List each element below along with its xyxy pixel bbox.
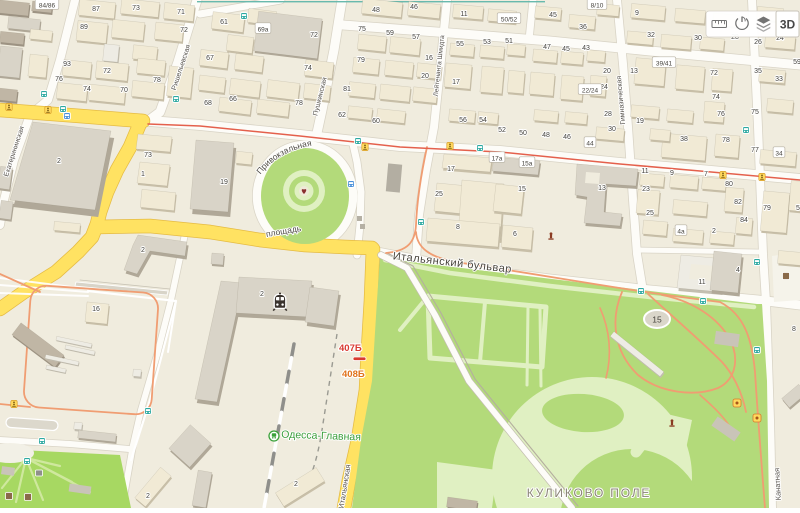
svg-text:11: 11 [641, 168, 648, 175]
svg-text:1: 1 [141, 171, 145, 178]
svg-text:84: 84 [740, 217, 748, 224]
svg-text:78: 78 [295, 100, 303, 107]
svg-text:53: 53 [483, 39, 491, 46]
svg-text:89: 89 [80, 24, 88, 31]
svg-text:15а: 15а [522, 160, 533, 167]
svg-text:30: 30 [608, 126, 616, 133]
svg-text:46: 46 [563, 134, 571, 141]
svg-text:87: 87 [92, 6, 100, 13]
svg-text:2: 2 [712, 228, 716, 235]
svg-text:75: 75 [751, 109, 759, 116]
svg-text:61: 61 [220, 19, 228, 26]
svg-text:56: 56 [459, 117, 467, 124]
svg-text:48: 48 [542, 132, 550, 139]
svg-text:3D: 3D [780, 18, 796, 32]
svg-text:71: 71 [177, 9, 185, 16]
svg-text:73: 73 [144, 152, 152, 159]
svg-text:79: 79 [357, 57, 365, 64]
svg-text:17: 17 [447, 166, 455, 173]
svg-text:2: 2 [260, 291, 264, 298]
svg-text:32: 32 [647, 32, 655, 39]
svg-text:68: 68 [204, 100, 212, 107]
svg-text:Канатная: Канатная [772, 468, 783, 501]
svg-text:4: 4 [736, 267, 740, 274]
svg-text:60: 60 [372, 118, 380, 125]
svg-text:28: 28 [604, 111, 612, 118]
svg-text:26: 26 [754, 39, 762, 46]
svg-text:15: 15 [518, 186, 526, 193]
svg-text:79: 79 [763, 205, 771, 212]
svg-text:2: 2 [57, 158, 61, 165]
svg-text:72: 72 [103, 68, 111, 75]
svg-text:43: 43 [582, 45, 590, 52]
svg-text:52: 52 [498, 127, 506, 134]
svg-text:5: 5 [796, 205, 800, 212]
svg-text:33: 33 [775, 76, 783, 83]
svg-text:57: 57 [412, 34, 420, 41]
svg-text:16: 16 [92, 306, 100, 313]
svg-text:72: 72 [710, 70, 718, 77]
svg-text:11: 11 [698, 279, 705, 286]
svg-text:9: 9 [635, 10, 639, 17]
svg-text:50: 50 [519, 130, 527, 137]
svg-text:59: 59 [386, 30, 394, 37]
svg-text:15: 15 [652, 315, 662, 325]
svg-text:17: 17 [452, 79, 460, 86]
svg-text:19: 19 [636, 118, 644, 125]
svg-text:72: 72 [180, 27, 188, 34]
svg-text:19: 19 [220, 179, 228, 186]
svg-text:9: 9 [670, 170, 674, 177]
svg-text:13: 13 [630, 68, 638, 75]
svg-text:2: 2 [294, 481, 298, 488]
svg-text:93: 93 [63, 61, 71, 68]
svg-text:81: 81 [343, 86, 351, 93]
svg-text:39/41: 39/41 [656, 60, 673, 67]
svg-text:75: 75 [358, 26, 366, 33]
svg-text:44: 44 [586, 140, 594, 147]
svg-text:17а: 17а [492, 155, 503, 162]
svg-text:62: 62 [338, 112, 346, 119]
svg-text:35: 35 [754, 68, 762, 75]
svg-text:30: 30 [694, 35, 702, 42]
svg-text:38: 38 [680, 136, 688, 143]
svg-text:77: 77 [751, 147, 759, 154]
svg-text:78: 78 [153, 77, 161, 84]
svg-text:74: 74 [712, 94, 720, 101]
svg-text:13: 13 [598, 185, 606, 192]
svg-text:7: 7 [704, 171, 708, 178]
svg-text:25: 25 [646, 210, 654, 217]
svg-text:45: 45 [562, 46, 570, 53]
svg-text:23: 23 [642, 186, 650, 193]
svg-text:2: 2 [141, 247, 145, 254]
svg-text:4а: 4а [677, 228, 685, 235]
svg-text:20: 20 [603, 68, 611, 75]
svg-text:76: 76 [717, 111, 725, 118]
svg-text:72: 72 [310, 32, 318, 39]
svg-text:48: 48 [372, 7, 380, 14]
svg-text:25: 25 [435, 191, 443, 198]
svg-text:50/52: 50/52 [501, 16, 518, 23]
svg-text:8: 8 [456, 224, 460, 231]
svg-text:16: 16 [425, 55, 433, 62]
svg-text:73: 73 [132, 5, 140, 12]
svg-text:78: 78 [722, 137, 730, 144]
svg-text:8: 8 [792, 326, 796, 333]
svg-text:80: 80 [725, 181, 733, 188]
svg-text:6: 6 [513, 231, 517, 238]
svg-text:45: 45 [549, 12, 557, 19]
svg-text:47: 47 [543, 44, 551, 51]
svg-text:20: 20 [421, 73, 429, 80]
svg-text:46: 46 [410, 4, 418, 11]
svg-text:2: 2 [146, 493, 150, 500]
svg-text:55: 55 [456, 41, 464, 48]
svg-text:407Б: 407Б [339, 343, 362, 354]
svg-text:74: 74 [83, 86, 91, 93]
svg-text:51: 51 [505, 38, 513, 45]
svg-text:67: 67 [206, 55, 214, 62]
svg-text:36: 36 [579, 24, 587, 31]
svg-text:8/10: 8/10 [591, 2, 604, 9]
svg-text:82: 82 [734, 199, 742, 206]
svg-text:11: 11 [460, 11, 467, 18]
svg-text:74: 74 [304, 65, 312, 72]
svg-text:54: 54 [479, 117, 487, 124]
svg-text:22/24: 22/24 [582, 87, 599, 94]
svg-text:59: 59 [793, 59, 800, 66]
svg-text:69а: 69а [258, 26, 269, 33]
svg-text:66: 66 [229, 96, 237, 103]
svg-text:408Б: 408Б [342, 369, 365, 380]
svg-text:34: 34 [775, 150, 783, 157]
svg-text:КУЛИКОВО ПОЛЕ: КУЛИКОВО ПОЛЕ [527, 486, 651, 500]
svg-text:84/86: 84/86 [39, 2, 56, 9]
svg-text:76: 76 [55, 76, 63, 83]
svg-text:70: 70 [120, 87, 128, 94]
